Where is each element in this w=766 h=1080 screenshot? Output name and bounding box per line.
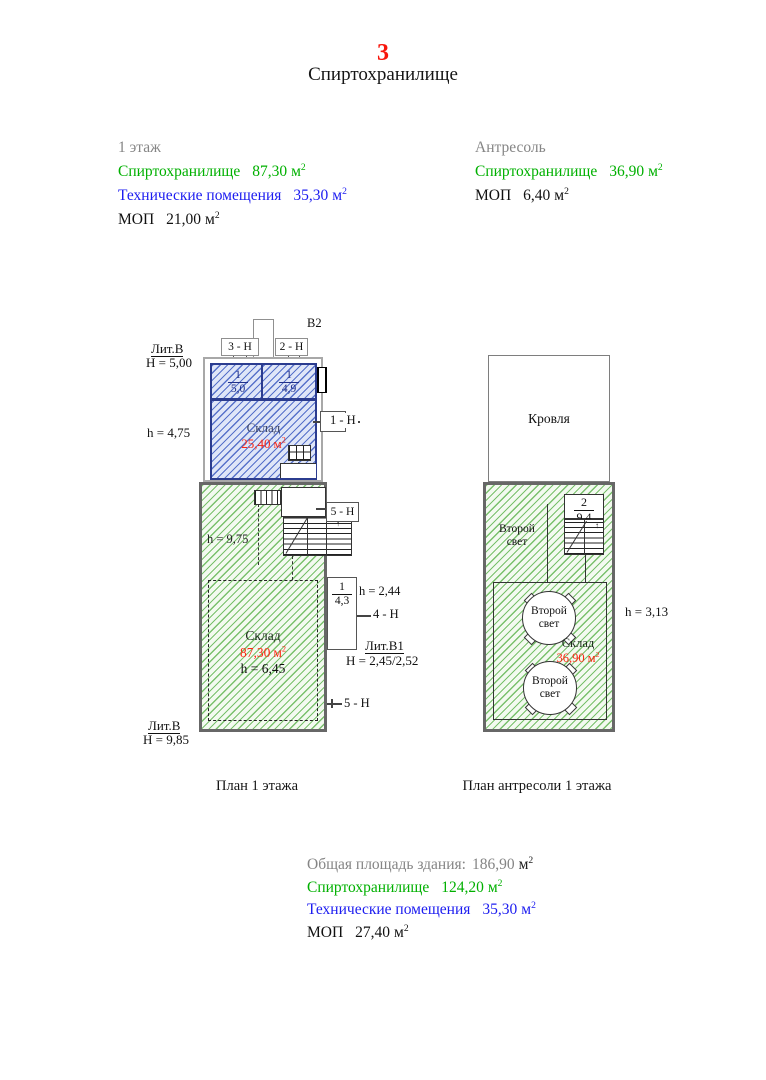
legend-floor1-alcohol: Спиртохранилище87,30м2 [118, 163, 347, 187]
legend-floor1: 1 этаж Спиртохранилище87,30м2 Технически… [118, 139, 347, 235]
room1-tag: 15,0 [218, 369, 258, 396]
inner-wall [212, 398, 315, 401]
marker-4n-label: 4 - Н [373, 607, 399, 622]
summary-tech: Технические помещения35,30м2 [307, 901, 536, 924]
annex-tag: 14,3 [328, 581, 356, 608]
sklad-green-label: Склад 87,30м2 h = 6,45 [213, 628, 313, 678]
height-label-244: h = 2,44 [359, 584, 400, 599]
dashed-line [258, 504, 259, 565]
annex-b1: 14,3 [327, 577, 357, 650]
marker-1n-label: 1 - Н [328, 413, 358, 428]
tick [331, 699, 333, 708]
area-unit: м2 [273, 436, 285, 451]
summary-total: Общая площадь здания:186,90м2 [307, 856, 536, 879]
mezzanine-plan: Кровля 29,4 ↑ Второй свет Вт [455, 315, 690, 760]
leader-line [327, 703, 342, 705]
window-symbol [317, 367, 327, 393]
stair-flight-left [283, 517, 309, 556]
inner-wall-line [547, 504, 548, 582]
lit-b1-height: Н = 2,45/2,52 [346, 654, 418, 668]
stair-flight-right: ↑ [307, 517, 352, 556]
page-title: Спиртохранилище [0, 64, 766, 86]
area-unit: м2 [648, 163, 663, 180]
marker-3n-box: 3 - Н [221, 338, 259, 356]
legend-mezzanine-heading: Антресоль [475, 139, 663, 163]
document-page: 3 Спиртохранилище 1 этаж Спиртохранилище… [0, 0, 766, 1080]
floor-plan-1: Лит.В Н = 5,00 В2 3 - Н 2 - Н 15,0 14,9 … [140, 315, 385, 760]
roof-area: Кровля [488, 355, 610, 482]
height-label-475: h = 4,75 [147, 425, 190, 441]
lit-v-top-height: Н = 5,00 [146, 356, 192, 370]
stair-flights: ↑ [564, 519, 604, 555]
legend-mezzanine: Антресоль Спиртохранилище36,90м2 МОП6,40… [475, 139, 663, 211]
height-label-975: h = 9,75 [207, 532, 248, 547]
height-label-313: h = 3,13 [625, 604, 668, 620]
legend-floor1-tech: Технические помещения35,30м2 [118, 187, 347, 211]
storage-hall: ↑ h = 9,75 Склад 87,30м2 h = 6,45 [199, 482, 327, 732]
area-unit: м2 [521, 901, 536, 918]
area-unit: м2 [488, 879, 503, 896]
page-number: 3 [0, 40, 766, 67]
legend-floor1-mop: МОП21,00м2 [118, 211, 347, 235]
area-unit: м2 [273, 645, 286, 660]
marker-5n-lower-label: 5 - Н [344, 696, 370, 711]
leader-line [357, 615, 371, 617]
summary-alcohol: Спиртохранилище124,20м2 [307, 879, 536, 902]
arrow-up-icon: ↑ [595, 521, 599, 530]
stairs-top-run [254, 490, 281, 505]
tank-2: Второй свет [521, 659, 579, 717]
inner-wall-line [585, 555, 586, 582]
area-unit: м2 [554, 187, 569, 204]
legend-mezzanine-alcohol: Спиртохранилище36,90м2 [475, 163, 663, 187]
room2-tag: 14,9 [269, 369, 309, 396]
lit-v-bottom-height: Н = 9,85 [143, 733, 189, 747]
lit-b1-label: Лит.В1 [365, 639, 404, 654]
technical-block: 15,0 14,9 Склад 25,40м2 ↓ [210, 363, 317, 480]
sklad-mezzanine-label: Склад 36,90м2 [546, 636, 610, 666]
plan1-caption: План 1 этажа [172, 778, 342, 795]
vent-label: В2 [307, 316, 322, 331]
marker-5n-upper-box: 5 - Н [326, 502, 359, 522]
area-unit: м2 [519, 856, 534, 873]
stair-divider [326, 518, 327, 555]
area-unit: м2 [291, 163, 306, 180]
area-unit: м2 [332, 187, 347, 204]
mezzanine-storage: 29,4 ↑ Второй свет Второй свет [483, 482, 615, 732]
stair-direction-line [285, 518, 307, 554]
tank-top-label: Второй свет [523, 661, 577, 715]
area-unit: м2 [394, 924, 409, 941]
room-divider-wall [261, 365, 263, 398]
plan2-caption: План антресоли 1 этажа [452, 778, 622, 795]
legend-mezzanine-mop: МОП6,40м2 [475, 187, 663, 211]
stair-landing [281, 487, 326, 517]
landing [280, 463, 316, 478]
summary-block: Общая площадь здания:186,90м2 Спиртохран… [307, 856, 536, 946]
stairwell-box: 29,4 [564, 494, 604, 519]
area-unit: м2 [588, 651, 600, 665]
second-light-label: Второй свет [494, 523, 540, 555]
legend-floor1-heading: 1 этаж [118, 139, 347, 163]
area-unit: м2 [205, 211, 220, 228]
marker-2n-box: 2 - Н [275, 338, 308, 356]
dashed-line [292, 556, 293, 580]
summary-mop: МОП27,40м2 [307, 924, 536, 947]
